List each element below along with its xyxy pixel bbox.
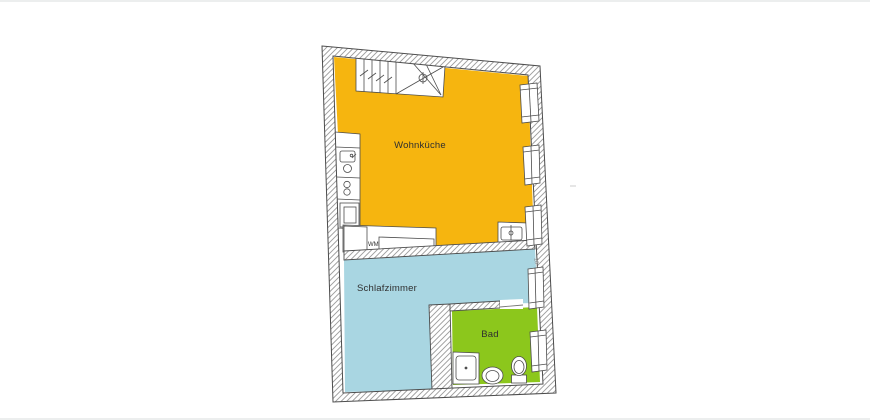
wall-dimension-label: 28 xyxy=(532,258,539,265)
washing-machine-label: WM xyxy=(368,242,379,248)
floor-plan-page: Wohnküche Schlafzimmer Bad WM 28 xyxy=(0,0,870,420)
bad-door-opening xyxy=(500,299,523,309)
window-icon xyxy=(528,267,544,309)
window-icon xyxy=(523,145,540,185)
washbasin-icon xyxy=(482,367,503,384)
shower-icon xyxy=(453,352,479,384)
scan-artifact xyxy=(570,185,576,187)
wall-bad-left xyxy=(429,304,452,390)
room-label-schlafzimmer: Schlafzimmer xyxy=(357,283,417,294)
toilet-icon xyxy=(512,357,527,384)
room-label-bad: Bad xyxy=(481,329,499,340)
kitchen-counter xyxy=(335,132,360,229)
window-icon xyxy=(520,83,539,123)
room-label-wohnkueche: Wohnküche xyxy=(394,140,446,151)
window-icon xyxy=(525,205,542,246)
floor-plan-image: Wohnküche Schlafzimmer Bad WM 28 xyxy=(0,0,870,420)
window-icon xyxy=(530,330,547,372)
